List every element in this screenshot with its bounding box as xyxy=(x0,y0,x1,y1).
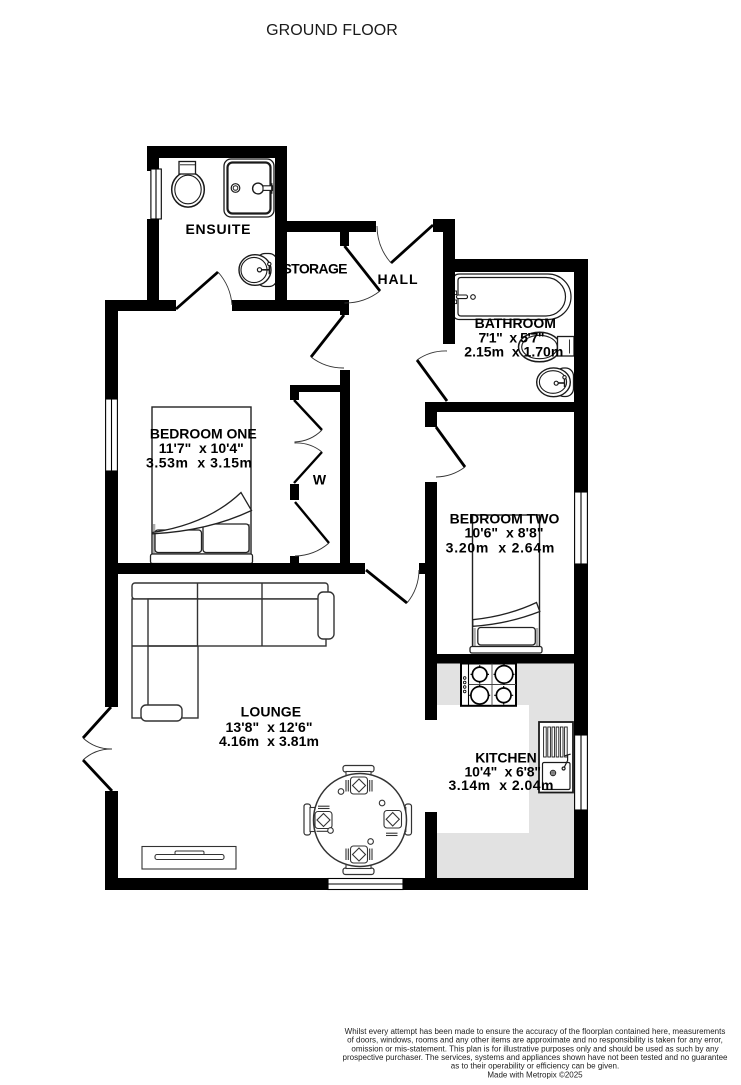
svg-text:3.53m x 3.15m: 3.53m x 3.15m xyxy=(146,454,252,470)
svg-text:Made with Metropix ©2025: Made with Metropix ©2025 xyxy=(487,1070,583,1079)
svg-text:Whilst every attempt has been: Whilst every attempt has been made to en… xyxy=(345,1027,726,1036)
svg-text:3.14m x 2.04m: 3.14m x 2.04m xyxy=(449,777,554,793)
svg-text:omission or mis-statement. Thi: omission or mis-statement. This plan is … xyxy=(351,1044,718,1053)
svg-text:GROUND FLOOR: GROUND FLOOR xyxy=(266,22,398,39)
svg-text:4.16m x 3.81m: 4.16m x 3.81m xyxy=(219,733,319,749)
svg-text:2.15m x 1.70m: 2.15m x 1.70m xyxy=(464,344,563,360)
svg-text:W: W xyxy=(313,472,327,488)
svg-text:STORAGE: STORAGE xyxy=(283,261,348,277)
svg-text:LOUNGE: LOUNGE xyxy=(241,704,302,720)
svg-text:HALL: HALL xyxy=(378,271,418,287)
svg-text:as to their operability or eff: as to their operability or efficiency ca… xyxy=(451,1062,619,1071)
svg-text:of doors, windows, rooms and a: of doors, windows, rooms and any other i… xyxy=(347,1036,723,1045)
svg-text:ENSUITE: ENSUITE xyxy=(186,221,251,237)
svg-text:10'6" x 8'8": 10'6" x 8'8" xyxy=(465,525,544,541)
svg-text:3.20m x 2.64m: 3.20m x 2.64m xyxy=(446,539,555,555)
